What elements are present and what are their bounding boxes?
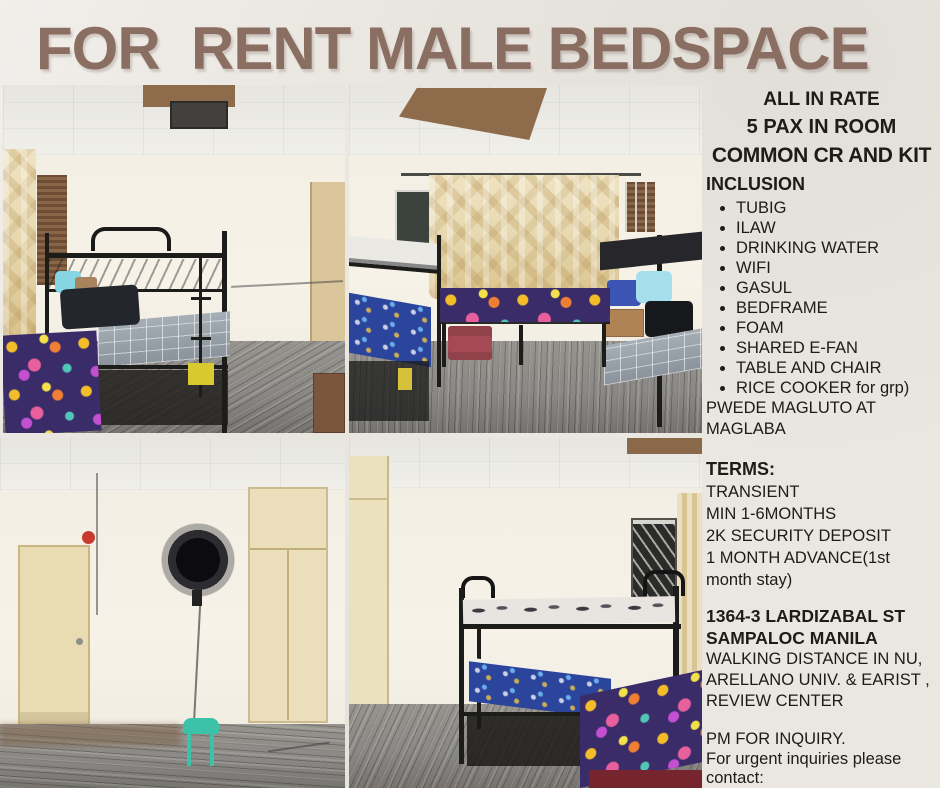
location-review-center: REVIEW CENTER	[706, 691, 937, 712]
curtain	[429, 175, 619, 299]
inclusion-list: TUBIG ILAW DRINKING WATER WIFI GASUL BED…	[706, 198, 937, 398]
bunk-headboard	[461, 576, 495, 598]
inclusion-item-shared-efan: SHARED E-FAN	[736, 338, 937, 358]
bed-leg	[519, 325, 523, 365]
fan-cord	[193, 606, 201, 724]
inclusion-item-ilaw: ILAW	[736, 218, 937, 238]
rate-header: ALL IN RATE 5 PAX IN ROOM COMMON CR AND …	[706, 86, 937, 170]
contact-pm: PM FOR INQUIRY.	[706, 730, 937, 750]
bed-leg	[602, 323, 606, 367]
inclusion-item-table-chair: TABLE AND CHAIR	[736, 358, 937, 378]
window-blinds	[625, 182, 655, 232]
ceiling-opening	[170, 101, 228, 129]
contact-urgent: For urgent inquiries please contact:	[706, 750, 937, 788]
terms-deposit: 2K SECURITY DEPOSIT	[706, 525, 937, 547]
cabinet-seam	[250, 548, 326, 550]
fire-alarm	[82, 531, 95, 544]
contact-section: PM FOR INQUIRY. For urgent inquiries ple…	[706, 730, 937, 788]
wall-fan	[160, 522, 236, 598]
yellow-bag	[398, 368, 412, 390]
ceiling	[0, 438, 345, 490]
mattress-floral	[3, 331, 102, 433]
ladder-rung	[191, 297, 211, 300]
terms-heading: TERMS:	[706, 458, 937, 481]
inclusion-item-gasul: GASUL	[736, 278, 937, 298]
terms-advance: 1 MONTH ADVANCE(1st month stay)	[706, 547, 937, 591]
photo-room-top-left	[3, 85, 345, 433]
bed-leg	[442, 323, 446, 367]
top-bunk-mattress	[463, 596, 675, 626]
wall-wire	[96, 473, 98, 615]
wood-cabinet-corner	[313, 373, 345, 433]
inclusion-note: PWEDE MAGLUTO AT MAGLABA	[706, 398, 937, 440]
rate-line-all-in: ALL IN RATE	[706, 86, 937, 113]
location-section: 1364-3 LARDIZABAL ST SAMPALOC MANILA WAL…	[706, 605, 937, 712]
terms-duration: MIN 1-6MONTHS	[706, 503, 937, 525]
bunk-headboard	[91, 227, 171, 251]
stool-leg	[187, 732, 191, 766]
terms-section: TERMS: TRANSIENT MIN 1-6MONTHS 2K SECURI…	[706, 458, 937, 591]
worn-floor-patch	[0, 724, 180, 746]
red-suitcase	[448, 326, 492, 360]
door	[18, 545, 90, 728]
details-panel: ALL IN RATE 5 PAX IN ROOM COMMON CR AND …	[706, 86, 937, 788]
curtain	[3, 149, 36, 335]
inclusion-item-foam: FOAM	[736, 318, 937, 338]
fan-mount	[192, 590, 202, 606]
bed-base	[589, 770, 702, 788]
photo-room-top-right	[349, 85, 702, 433]
inclusion-section: INCLUSION TUBIG ILAW DRINKING WATER WIFI…	[706, 173, 937, 440]
location-walking-distance: WALKING DISTANCE IN NU,	[706, 649, 937, 670]
stool-leg	[210, 732, 214, 766]
bunk-rail	[459, 624, 681, 629]
address-city: SAMPALOC MANILA	[706, 627, 937, 649]
inclusion-item-rice-cooker: RICE COOKER for grp)	[736, 378, 937, 398]
cardboard-box	[604, 309, 644, 337]
location-universities: ARELLANO UNIV. & EARIST ,	[706, 670, 937, 691]
inclusion-item-tubig: TUBIG	[736, 198, 937, 218]
poster-title: FOR RENT MALE BEDSPACE	[36, 14, 869, 83]
window	[395, 190, 431, 245]
ladder-rung	[191, 337, 211, 340]
flyer: FOR RENT MALE BEDSPACE	[0, 0, 940, 788]
photo-room-bottom-right	[349, 438, 702, 788]
black-bag	[60, 284, 141, 329]
inclusion-item-bedframe: BEDFRAME	[736, 298, 937, 318]
terms-transient: TRANSIENT	[706, 481, 937, 503]
cabinet	[349, 456, 389, 704]
teal-bag	[636, 271, 672, 303]
cabinet-seam	[349, 498, 389, 500]
ceiling-patch	[627, 438, 702, 454]
door-knob	[76, 638, 83, 645]
mattress-floral	[440, 288, 610, 322]
rate-line-pax: 5 PAX IN ROOM	[706, 113, 937, 141]
yellow-bag	[188, 363, 214, 385]
inclusion-heading: INCLUSION	[706, 173, 937, 196]
under-bed-shadow	[349, 361, 429, 421]
address-street: 1364-3 LARDIZABAL ST	[706, 605, 937, 627]
photo-room-bottom-left	[0, 438, 345, 788]
inclusion-item-drinking-water: DRINKING WATER	[736, 238, 937, 258]
rate-line-common: COMMON CR AND KIT	[706, 141, 937, 170]
cabinet-seam	[287, 550, 289, 720]
inclusion-item-wifi: WIFI	[736, 258, 937, 278]
